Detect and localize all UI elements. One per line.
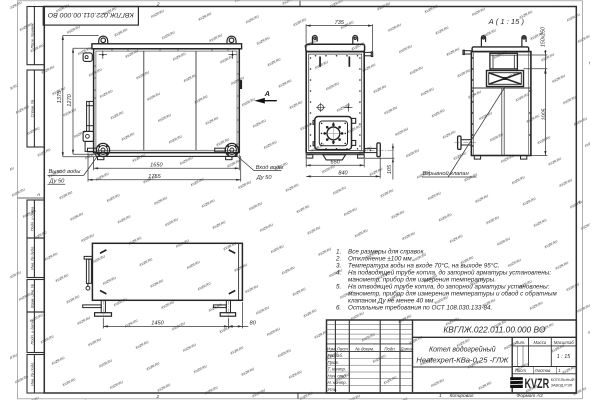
svg-text:На отводящей трубе котла, до з: На отводящей трубе котла, до запорной ар… xyxy=(348,282,550,290)
svg-text:Утв.: Утв. xyxy=(328,387,338,392)
svg-text:Лит.: Лит. xyxy=(514,340,525,345)
svg-text:Перв. примен.: Перв. примен. xyxy=(29,23,34,49)
svg-text:4.: 4. xyxy=(336,269,341,276)
svg-text:2.: 2. xyxy=(335,255,341,262)
svg-text:Вход воды: Вход воды xyxy=(256,165,284,171)
svg-text:Ду 50: Ду 50 xyxy=(49,178,66,184)
svg-text:1270: 1270 xyxy=(67,93,73,106)
svg-text:Копировал: Копировал xyxy=(450,393,474,399)
svg-text:Масса: Масса xyxy=(534,340,547,345)
svg-text:80: 80 xyxy=(250,321,257,327)
svg-text:Все размеры для справок.: Все размеры для справок. xyxy=(348,247,425,255)
svg-text:Инв. № дубл.: Инв. № дубл. xyxy=(29,246,34,270)
svg-text:105: 105 xyxy=(387,164,393,174)
svg-text:КОТЕЛЬНЫЙ: КОТЕЛЬНЫЙ xyxy=(551,378,575,382)
svg-text:А: А xyxy=(264,89,270,98)
svg-text:Справ. №: Справ. № xyxy=(29,99,34,117)
svg-text:Лист: Лист xyxy=(514,368,526,373)
svg-text:Выход воды: Выход воды xyxy=(49,169,82,175)
svg-text:1755: 1755 xyxy=(148,174,161,180)
svg-text:Масштаб: Масштаб xyxy=(554,340,575,345)
svg-text:Изм: Изм xyxy=(327,346,335,351)
svg-text:Формат А3: Формат А3 xyxy=(516,393,543,399)
svg-text:Ду 50: Ду 50 xyxy=(256,175,273,181)
svg-text:манометр, прибор для измерения: манометр, прибор для измерения температу… xyxy=(348,275,496,283)
svg-text:5.: 5. xyxy=(336,283,341,290)
svg-text:1 : 15: 1 : 15 xyxy=(557,354,571,360)
svg-text:КВГЛЖ.022.011.00.000 ВО: КВГЛЖ.022.011.00.000 ВО xyxy=(443,325,545,335)
svg-text:Листов: Листов xyxy=(534,368,551,373)
svg-text:650: 650 xyxy=(331,160,341,166)
svg-text:Лист: Лист xyxy=(336,346,348,351)
svg-text:1650: 1650 xyxy=(150,163,163,169)
svg-text:Heatexpert-КВа-0,25 -ГЛЖ: Heatexpert-КВа-0,25 -ГЛЖ xyxy=(416,358,509,365)
svg-text:Инв. № подл.: Инв. № подл. xyxy=(29,362,34,386)
svg-text:А ( 1 : 15 ): А ( 1 : 15 ) xyxy=(488,17,525,26)
svg-text:1005: 1005 xyxy=(541,108,547,121)
svg-text:КВГЛЖ.022.011.00.000 ВО: КВГЛЖ.022.011.00.000 ВО xyxy=(47,11,134,18)
svg-text:Подп. и дата: Подп. и дата xyxy=(29,206,34,231)
svg-text:1375: 1375 xyxy=(57,90,63,103)
svg-text:1: 1 xyxy=(439,393,442,399)
svg-text:Подп. и дата: Подп. и дата xyxy=(29,319,34,344)
svg-text:6.: 6. xyxy=(336,304,341,311)
svg-text:150х250: 150х250 xyxy=(541,27,547,47)
svg-text:Нач. отд.: Нач. отд. xyxy=(328,373,347,378)
svg-text:1.: 1. xyxy=(336,248,341,255)
svg-text:3.: 3. xyxy=(336,262,341,269)
svg-text:Взрывной клапан: Взрывной клапан xyxy=(423,170,470,177)
svg-text:840: 840 xyxy=(338,171,348,177)
svg-text:ЗАВОД РЭП: ЗАВОД РЭП xyxy=(551,384,573,388)
svg-text:Пров.: Пров. xyxy=(328,360,339,365)
svg-text:Н. контр.: Н. контр. xyxy=(328,380,347,385)
svg-text:2: 2 xyxy=(156,394,160,399)
svg-text:А: А xyxy=(36,192,40,197)
svg-text:клапаном Ду не менее 40 мм.: клапаном Ду не менее 40 мм. xyxy=(348,297,435,304)
svg-text:Температура воды на входе 70°С: Температура воды на входе 70°С, на выход… xyxy=(348,261,500,269)
svg-text:Котел водогрейный: Котел водогрейный xyxy=(429,346,496,354)
svg-text:манометр, прибор для измерения: манометр, прибор для измерения температу… xyxy=(348,289,557,297)
svg-text:735: 735 xyxy=(335,20,345,26)
svg-text:Отклонение ±100 мм.: Отклонение ±100 мм. xyxy=(348,255,413,262)
svg-text:На подводящей трубе котла, до: На подводящей трубе котла, до запорной а… xyxy=(348,268,551,276)
svg-text:Дата: Дата xyxy=(400,346,413,351)
svg-text:1450: 1450 xyxy=(151,321,164,327)
svg-text:2: 2 xyxy=(156,1,160,6)
svg-text:KVZR: KVZR xyxy=(525,376,550,391)
svg-text:А: А xyxy=(577,200,581,205)
svg-text:Остальные требования по ОСТ 10: Остальные требования по ОСТ 108.030.133-… xyxy=(348,303,492,311)
svg-text:Взам. инв. №: Взам. инв. № xyxy=(29,283,34,308)
svg-text:Т. контр.: Т. контр. xyxy=(328,367,347,372)
svg-text:Разраб.: Разраб. xyxy=(328,353,344,358)
svg-text:Подп.: Подп. xyxy=(384,346,395,351)
svg-text:№ докум.: № докум. xyxy=(355,346,374,351)
